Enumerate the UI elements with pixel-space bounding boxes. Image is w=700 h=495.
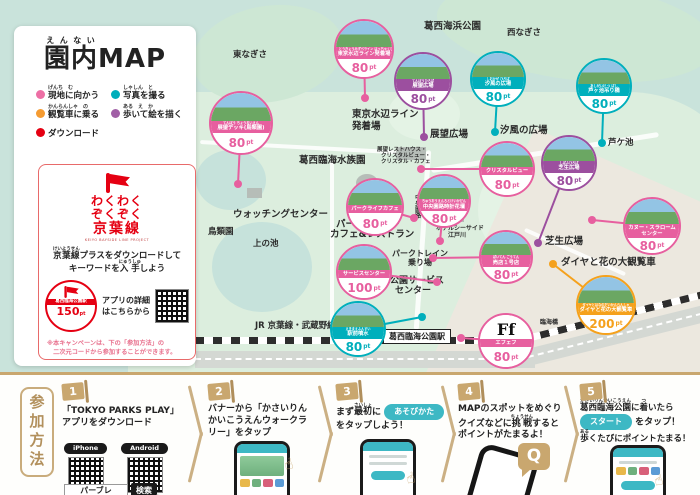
quiz-bubble-icon: Q — [518, 443, 550, 470]
step-4-text: ポイントがたまるよ！ — [458, 429, 548, 441]
map-spot-badge[interactable]: えきまえふんすい駅前噴水80pt — [330, 301, 386, 357]
spot-name-band: サービスセンター — [338, 270, 390, 279]
map-spot-dot — [534, 239, 542, 247]
legend-dot — [36, 128, 45, 137]
map-spot-badge[interactable]: しおかぜ ひろば汐風の広場80pt — [470, 51, 526, 107]
step-1-text: アプリをダウンロード — [62, 417, 152, 429]
map-spot-badge[interactable]: クリスタルビュー80pt — [479, 141, 535, 197]
map-label: 東京水辺ライン — [352, 110, 419, 120]
app-detail-qr-code — [155, 289, 189, 323]
map-spot-dot — [234, 180, 242, 188]
campaign-instruction: 京葉線けいようせんプラスをダウンロードして キーワードを入手にゅうしゅしよう — [39, 247, 195, 276]
map-label: 葛西海浜公園 — [424, 22, 481, 32]
map-spot-dot — [436, 237, 444, 245]
app-detail-text: アプリの詳細 はこちらから — [102, 295, 150, 317]
map-label: 汐風の広場 — [500, 126, 548, 136]
map-spot-dot — [420, 133, 428, 141]
step-number-flag: 1 — [61, 382, 84, 401]
phone-mockup — [234, 441, 290, 495]
lower-pond — [196, 150, 266, 210]
step-number-flag: 2 — [207, 382, 230, 401]
map-spot-dot — [410, 214, 418, 222]
step-5-text: 葛西臨海公園かさいりんかいこうえんに着ついたら — [580, 399, 674, 414]
asobikata-button: あそびかた — [384, 404, 444, 420]
legend-item: ダウンロード — [36, 124, 111, 139]
legend-dot — [111, 90, 120, 99]
map-spot-badge[interactable]: しばふひろば芝生広場80pt — [541, 135, 597, 191]
step-1-text: 「TOKYO PARKS PLAY」 — [62, 405, 179, 417]
flyer-canvas: 葛西臨海公園駅 てんぼう ちょうるいえん展望デッキ(鳥類園)80ptとうきょうみ… — [0, 0, 700, 495]
map-label: 展望広場 — [430, 130, 468, 140]
step-5: 5 葛西臨海公園かさいりんかいこうえんに着ついたら スタート をタップ！ 歩ある… — [578, 383, 698, 495]
map-label: クリスタル・カフェ — [381, 159, 431, 165]
iphone-pill: iPhone — [64, 443, 107, 454]
map-label: 東なぎさ — [233, 51, 267, 60]
map-spot-dot — [433, 278, 441, 286]
spot-name-band: てんぼう ちょうるいえん展望デッキ(鳥類園) — [211, 121, 271, 133]
step-1: 1 「TOKYO PARKS PLAY」 アプリをダウンロード iPhone A… — [60, 383, 192, 495]
map-spot-badge[interactable]: カヌー・スラロームセンター80pt — [623, 197, 681, 255]
map-label: センター — [395, 287, 431, 297]
spot-name-band: とうきょうみずべライン はっちゃくじょう東京水辺ライン発着場 — [336, 47, 392, 59]
map-label: 乗り場 — [408, 259, 432, 268]
step-2-text: バナーから「かさいりん — [208, 403, 307, 415]
campaign-note: ※本キャンペーンは、下の「参加方法」の 二次元コードから参加することができます。 — [39, 339, 195, 357]
map-spot-badge[interactable]: サービスセンター100pt — [336, 244, 392, 300]
spot-photo — [336, 21, 392, 47]
map-spot-badge[interactable]: てんぼう ちょうるいえん展望デッキ(鳥類園)80pt — [209, 91, 273, 155]
keiyo-flag-icon — [63, 286, 79, 298]
map-label: 芦ケ池 — [608, 139, 634, 148]
step-3: 3 まず最初さいしょに あそびかた をタップしよう！ ☝ — [334, 383, 446, 495]
step-number-flag: 3 — [335, 382, 358, 401]
step-number-flag: 4 — [457, 382, 480, 401]
legend-label: ダウンロード — [48, 124, 99, 139]
legend-panel: 園内えんないMAP げんち む現地に向かうしゃしん と写真を撮るかんらんしゃ の… — [14, 26, 196, 366]
legend-item: げんち む現地に向かう — [36, 86, 111, 101]
map-spot-badge[interactable]: パークライフカフェ80pt — [346, 178, 404, 236]
map-spot-dot — [491, 128, 499, 136]
spot-name-band: ばいてん ごうてん売店１号店 — [481, 255, 531, 267]
map-spot-dot — [549, 260, 557, 268]
map-label: 臨海橋 — [540, 320, 558, 327]
step-4: 4 MAPのスポットをめぐり クイズなどに挑戦ちょうせんすると ポイントがたまる… — [456, 383, 571, 495]
spot-name-band: カヌー・スラロームセンター — [625, 224, 679, 239]
legend-item: しゃしん と写真を撮る — [111, 86, 186, 101]
step-number-flag: 5 — [579, 382, 602, 401]
map-spot-dot — [588, 216, 596, 224]
legend-item: ある え か歩いて絵を描く — [111, 105, 186, 120]
campaign-logo-line2: ぞくぞく — [39, 208, 195, 221]
map-label: 上の池 — [253, 240, 279, 249]
legend-label: げんち む現地に向かう — [48, 86, 99, 101]
map-spot-dot — [598, 139, 606, 147]
map-spot-dot — [417, 165, 425, 173]
legend-dot — [111, 109, 120, 118]
watching-center-building — [247, 188, 262, 198]
map-spot-dot — [457, 334, 465, 342]
map-spot-dot — [418, 313, 426, 321]
campaign-logo-line3: 京葉線 — [39, 221, 195, 237]
spot-name-band: てんぼうひろば展望広場 — [396, 79, 450, 91]
spot-name-band: クリスタルビュー — [481, 167, 533, 176]
map-label: 葛西臨海水族園 — [299, 156, 366, 166]
step-5-text: 歩あるくたびにポイントたまる！ — [580, 430, 691, 445]
map-label: ダイヤと花の大観覧車 — [561, 258, 656, 268]
spot-photo — [396, 54, 450, 79]
campaign-box: わくわく ぞくぞく 京葉線 KEIYO BAYSIDE LINE PROJECT… — [38, 164, 196, 360]
step-2: 2 バナーから「かさいりん かいこうえんウォークラ リー」をタップ ☝ — [206, 383, 324, 495]
map-label: 芝生広場 — [545, 237, 583, 247]
map-spot-badge[interactable]: ばいてん ごうてん売店１号店80pt — [479, 230, 533, 284]
map-spot-badge[interactable]: Ffエフェフ80pt — [478, 313, 534, 369]
map-spot-badge[interactable]: とうきょうみずべライン はっちゃくじょう東京水辺ライン発着場80pt — [334, 19, 394, 79]
legend-label: かんらんしゃ の観覧車に乗る — [48, 105, 99, 120]
spot-name-band: しばふひろば芝生広場 — [543, 161, 595, 173]
map-label: 西なぎさ — [507, 29, 541, 38]
step-2-text: リー」をタップ — [208, 427, 271, 439]
spot-points: 80pt — [336, 59, 392, 77]
step-5-text: スタート をタップ！ — [580, 414, 680, 430]
keiyo-flag-icon — [104, 173, 130, 193]
search-button[interactable]: 検索 — [131, 483, 157, 495]
map-spot-badge[interactable]: あしがいけ つ ばし芦ヶ池吊り橋80pt — [576, 58, 632, 114]
spot-name-band: エフェフ — [480, 339, 532, 348]
step-2-text: かいこうえんウォークラ — [208, 415, 307, 427]
map-spot-badge[interactable]: ダイヤとはなのだいかんらんしゃダイヤと花の大観覧車200pt — [576, 275, 636, 335]
spot-name-band: えきまえふんすい駅前噴水 — [332, 327, 384, 339]
map-spot-badge[interactable]: てんぼうひろば展望広場80pt — [394, 52, 452, 110]
step-3-text: まず最初さいしょに あそびかた — [336, 403, 444, 420]
legend-list: げんち む現地に向かうしゃしん と写真を撮るかんらんしゃ の観覧車に乗るある え… — [36, 86, 186, 143]
how-to-title: 参加方法 — [20, 387, 54, 477]
map-path — [330, 160, 334, 335]
map-spot-dot — [361, 94, 369, 102]
map-label: JR 京葉線・武蔵野線 — [255, 322, 336, 331]
step-4-text: クイズなどに挑戦ちょうせんすると — [458, 415, 559, 430]
how-to-strip: 参加方法 1 「TOKYO PARKS PLAY」 アプリをダウンロード iPh… — [0, 372, 700, 495]
map-spot-dot — [429, 254, 437, 262]
android-pill: Android — [121, 443, 168, 454]
step-3-text: をタップしよう！ — [336, 420, 408, 432]
campaign-logo-subtitle: KEIYO BAYSIDE LINE PROJECT — [39, 238, 195, 242]
map-spot-badge[interactable]: ちゅうおうえんろとけいかだん中央園路時計花壇80pt — [417, 174, 471, 228]
start-button: スタート — [580, 414, 632, 430]
station-name-box: 葛西臨海公園駅 — [383, 329, 451, 344]
map-label: ウォッチングセンター — [233, 210, 328, 220]
legend-item: かんらんしゃ の観覧車に乗る — [36, 105, 111, 120]
spot-name-band: パークライフカフェ — [348, 205, 402, 214]
legend-dot — [36, 109, 45, 118]
step-4-text: MAPのスポットをめぐり — [458, 403, 562, 415]
spot-name-band: しおかぜ ひろば汐風の広場 — [472, 77, 524, 89]
station-points-badge: 葛西臨海公園駅 150pt — [45, 280, 97, 332]
map-label: 発着場 — [352, 122, 381, 132]
page-title: 園内えんないMAP — [14, 36, 196, 75]
legend-label: ある え か歩いて絵を描く — [123, 105, 182, 120]
spot-name-band: ちゅうおうえんろとけいかだん中央園路時計花壇 — [419, 199, 469, 211]
spot-name-band: あしがいけ つ ばし芦ヶ池吊り橋 — [578, 84, 630, 96]
map-label: 江戸川 — [448, 233, 466, 240]
search-input[interactable]: パーブレ — [64, 484, 128, 495]
station-badge-points: 150pt — [57, 305, 86, 321]
map-label: 鳥類園 — [208, 228, 234, 237]
spot-name-band: ダイヤとはなのだいかんらんしゃダイヤと花の大観覧車 — [578, 303, 634, 315]
legend-label: しゃしん と写真を撮る — [123, 86, 166, 101]
legend-dot — [36, 90, 45, 99]
